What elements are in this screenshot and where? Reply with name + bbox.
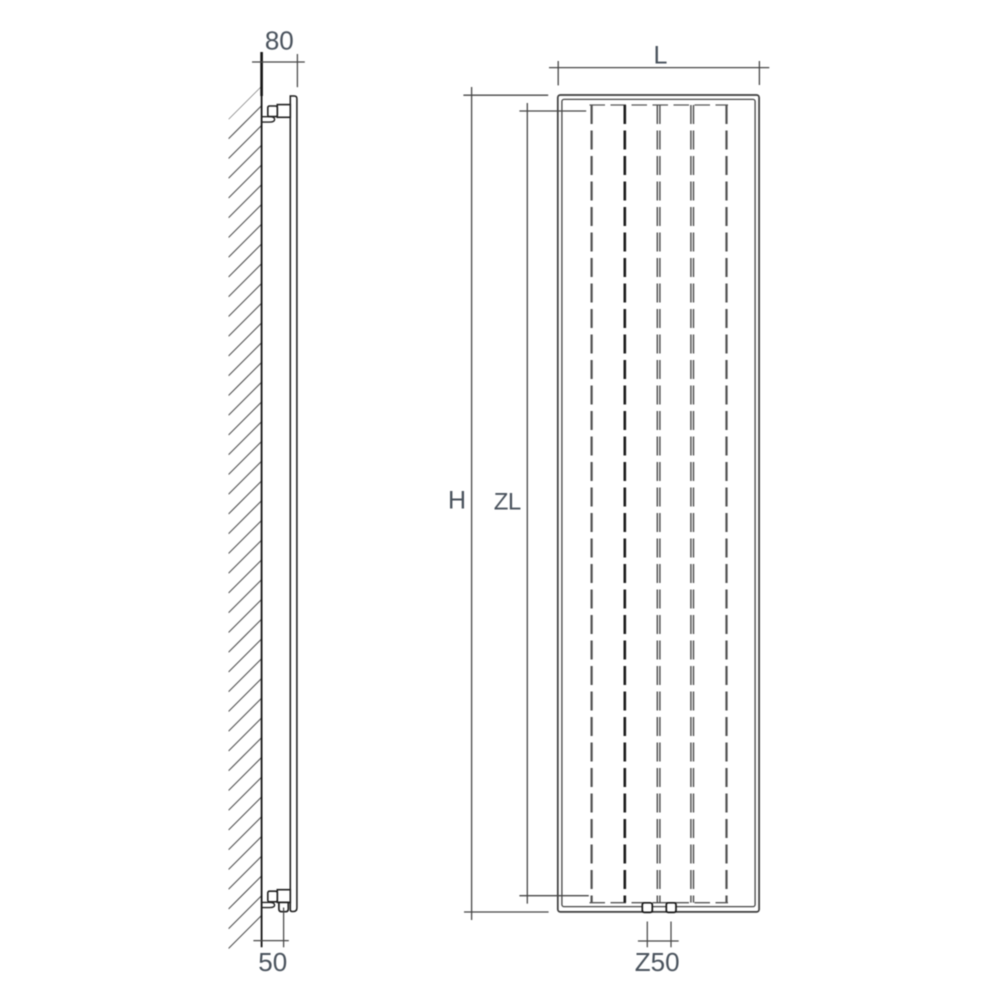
- svg-text:Z50: Z50: [635, 947, 680, 977]
- svg-text:80: 80: [265, 25, 294, 55]
- svg-text:L: L: [654, 41, 668, 69]
- svg-text:H: H: [448, 487, 466, 515]
- svg-text:ZL: ZL: [494, 488, 521, 515]
- svg-text:50: 50: [258, 947, 287, 977]
